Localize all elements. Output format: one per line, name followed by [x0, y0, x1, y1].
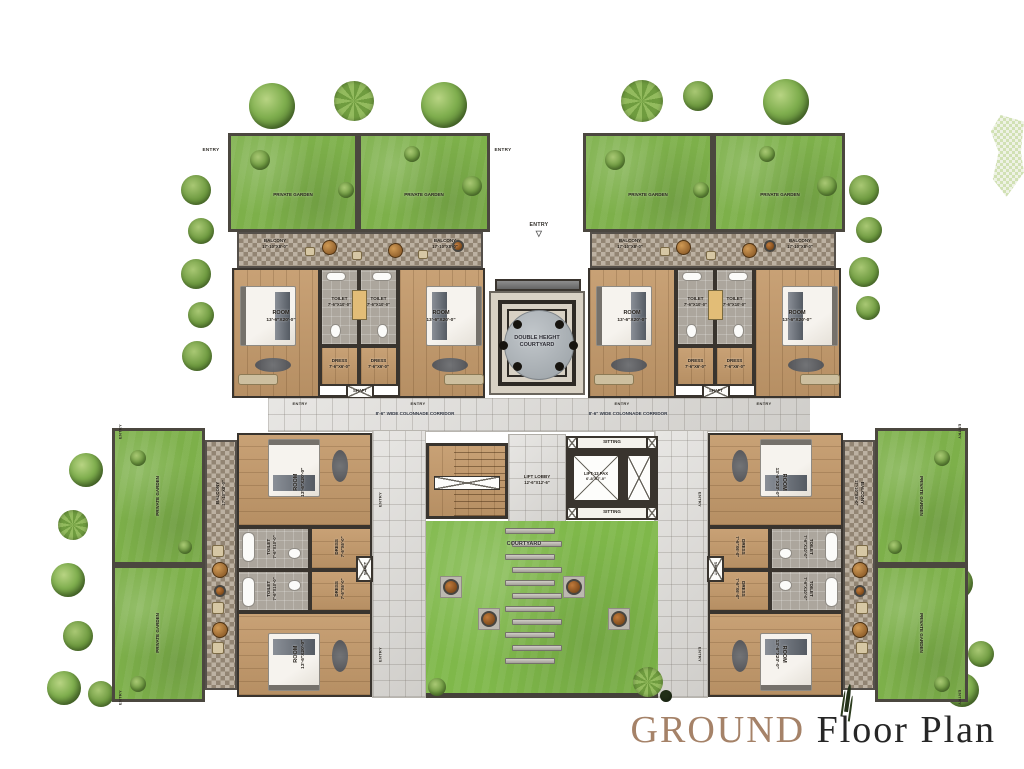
sink-icon — [326, 272, 346, 281]
room-label: ROOM13'-6"X20'-0" — [773, 452, 787, 512]
entry-label: ENTRY — [405, 401, 431, 406]
private-garden-label: PRIVATE GARDEN — [918, 598, 924, 668]
balcony-label: BALCONY17'-10"X8'-0" — [600, 238, 660, 250]
stepping-stone — [512, 645, 562, 651]
private-garden-label: PRIVATE GARDEN — [155, 598, 161, 668]
table-icon — [212, 622, 228, 638]
table-icon — [852, 562, 868, 578]
wall-post — [646, 436, 658, 450]
entry-label: ENTRY — [751, 401, 777, 406]
shaft-label: SHAFT — [346, 388, 374, 393]
room-label: ROOM13'-6"X20'-0" — [293, 624, 307, 684]
rug-icon — [732, 450, 748, 482]
palm-tree-icon — [334, 81, 374, 121]
bush-icon — [693, 182, 709, 198]
private-garden-label: PRIVATE GARDEN — [155, 461, 161, 531]
entry-label: ENTRY — [609, 401, 635, 406]
table-icon — [322, 240, 337, 255]
stepping-stone — [505, 528, 555, 534]
entry-label: ENTRY — [524, 222, 554, 228]
shaft-label: SHAFT — [362, 556, 367, 582]
rug-icon — [432, 358, 468, 372]
toilet-label: TOILET7'-6"X10'-0" — [715, 296, 754, 308]
dress-label: DRESS7'-6"X6'-0" — [334, 567, 346, 611]
table-icon — [212, 562, 228, 578]
entry-label: ENTRY — [378, 642, 383, 668]
palm-tree-icon — [621, 80, 663, 122]
bush-icon — [63, 621, 93, 651]
rug-icon — [732, 640, 748, 672]
dress-label: DRESS7'-6"X6'-0" — [359, 358, 398, 370]
lift-lobby-label: LIFT LOBBY12'-6"X12'-6" — [508, 474, 566, 486]
stepping-stone — [512, 619, 562, 625]
chair-icon — [212, 545, 224, 557]
chair-icon — [352, 251, 362, 260]
tree-icon — [47, 671, 81, 705]
rug-icon — [332, 450, 348, 482]
entry-label: ENTRY — [198, 147, 224, 152]
bush-icon — [605, 150, 625, 170]
table-icon — [852, 622, 868, 638]
wall-post — [566, 506, 578, 520]
room-label: ROOM13'-6"X20'-0" — [251, 310, 311, 324]
entry-label: ENTRY — [698, 487, 703, 513]
bush-icon — [178, 540, 192, 554]
tree-icon — [763, 79, 809, 125]
balcony-label: BALCONY17'-10"X8'-0" — [770, 238, 830, 250]
stepping-stone — [505, 658, 555, 664]
bench-icon — [444, 374, 484, 385]
bush-icon — [181, 175, 211, 205]
bush-icon — [188, 302, 214, 328]
bush-icon — [660, 690, 672, 702]
dress-label: DRESS7'-6"X6'-0" — [676, 358, 715, 370]
bathtub-icon — [242, 577, 255, 607]
plant-pot-icon — [481, 611, 497, 627]
dress-label: DRESS7'-6"X6'-0" — [734, 567, 746, 611]
stair-landing — [434, 476, 500, 490]
private-garden-label: PRIVATE GARDEN — [918, 461, 924, 531]
toilet-label: TOILET7'-6"X10'-0" — [266, 567, 278, 611]
dhc-label: DOUBLE HEIGHTCOURTYARD — [493, 335, 581, 349]
stepping-stone — [505, 632, 555, 638]
lift-label: LIFT-13 PAX6'-8"X7'-0" — [572, 471, 620, 482]
rug-icon — [611, 358, 647, 372]
courtyard-wall — [426, 693, 658, 698]
floor-plan-canvas: PRIVATE GARDEN PRIVATE GARDEN ENTRY BALC… — [0, 0, 1024, 769]
wall-post — [566, 436, 578, 450]
entry-label: ENTRY — [118, 419, 123, 445]
toilet-icon — [288, 548, 301, 559]
entry-label: ENTRY — [958, 685, 963, 711]
tree-icon — [421, 82, 467, 128]
sink-icon — [682, 272, 702, 281]
entry-label: ENTRY — [287, 401, 313, 406]
bush-icon — [934, 676, 950, 692]
private-garden-label: PRIVATE GARDEN — [388, 192, 460, 198]
room-label: ROOM13'-6"X20'-0" — [411, 310, 471, 324]
toilet-icon — [686, 324, 697, 338]
entry-label: ENTRY — [698, 642, 703, 668]
bush-icon — [888, 540, 902, 554]
bush-icon — [88, 681, 114, 707]
toilet-icon — [779, 580, 792, 591]
lintel-wall — [495, 279, 581, 291]
entry-label: ENTRY — [490, 147, 516, 152]
toilet-label: TOILET7'-6"X10'-0" — [802, 567, 814, 611]
dress-label: DRESS7'-6"X6'-0" — [715, 358, 754, 370]
corridor-label: 8'-6" WIDE COLONNADE CORRIDOR — [558, 411, 698, 417]
bush-icon — [856, 296, 880, 320]
chair-icon — [856, 642, 868, 654]
bench-icon — [800, 374, 840, 385]
bathtub-icon — [242, 532, 255, 562]
bush-icon — [130, 676, 146, 692]
bathtub-icon — [825, 577, 838, 607]
private-garden-label: PRIVATE GARDEN — [258, 192, 328, 198]
stepping-stone — [505, 580, 555, 586]
room-label: ROOM13'-6"X20'-0" — [773, 624, 787, 684]
entry-arrow-icon: ▽ — [533, 229, 545, 238]
toilet-label: TOILET7'-6"X10'-0" — [320, 296, 359, 308]
dress-label: DRESS7'-6"X6'-0" — [734, 525, 746, 569]
balcony-label: BALCONY17'-10"X8'-0" — [245, 238, 305, 250]
entry-label: ENTRY — [378, 487, 383, 513]
bench-icon — [594, 374, 634, 385]
sitting-label: SITTING — [580, 439, 644, 445]
bush-icon — [188, 218, 214, 244]
bush-icon — [817, 176, 837, 196]
column-dot — [555, 320, 564, 329]
toilet-label: TOILET7'-6"X10'-0" — [266, 525, 278, 569]
toilet-icon — [288, 580, 301, 591]
balcony-label: BALCONY17'-10"X8'-0" — [215, 463, 227, 523]
plant-pot-icon — [443, 579, 459, 595]
toilet-icon — [733, 324, 744, 338]
bush-icon — [968, 641, 994, 667]
toilet-label: TOILET7'-6"X10'-0" — [676, 296, 715, 308]
table-icon — [676, 240, 691, 255]
room-label: ROOM13'-6"X20'-0" — [293, 452, 307, 512]
stepping-stone — [512, 593, 562, 599]
shaft-label: SHAFT — [702, 388, 730, 393]
toilet-label: TOILET7'-6"X10'-0" — [802, 525, 814, 569]
tree-icon — [69, 453, 103, 487]
chair-icon — [706, 251, 716, 260]
staircase — [426, 443, 508, 519]
room-label: ROOM13'-6"X20'-0" — [602, 310, 662, 324]
page-title: GROUND Floor Plan — [631, 708, 996, 752]
rug-icon — [788, 358, 824, 372]
sitting-label: SITTING — [580, 509, 644, 515]
bush-icon — [856, 217, 882, 243]
chair-icon — [856, 545, 868, 557]
toilet-icon — [779, 548, 792, 559]
private-garden — [583, 133, 713, 232]
plant-pot-icon — [854, 585, 866, 597]
bush-icon — [759, 146, 775, 162]
chair-icon — [212, 602, 224, 614]
chair-icon — [660, 247, 670, 256]
bush-icon — [182, 341, 212, 371]
plant-pot-icon — [566, 579, 582, 595]
rug-icon — [332, 640, 348, 672]
stepping-stone — [512, 567, 562, 573]
lift-car — [626, 454, 652, 502]
corridor-label: 8'-6" WIDE COLONNADE CORRIDOR — [345, 411, 485, 417]
palm-tree-icon — [58, 510, 88, 540]
chair-icon — [418, 250, 428, 259]
stepping-stone — [505, 606, 555, 612]
bush-icon — [849, 175, 879, 205]
stepping-stone — [505, 554, 555, 560]
chair-icon — [856, 602, 868, 614]
toilet-icon — [330, 324, 341, 338]
bush-icon — [934, 450, 950, 466]
balcony-label: BALCONY17'-10"X8'-0" — [853, 463, 865, 523]
plant-pot-icon — [214, 585, 226, 597]
sink-icon — [372, 272, 392, 281]
bench-icon — [238, 374, 278, 385]
courtyard-label: COURTYARD — [489, 541, 559, 548]
toilet-icon — [377, 324, 388, 338]
bush-icon — [181, 259, 211, 289]
table-icon — [388, 243, 403, 258]
column-dot — [555, 362, 564, 371]
bathtub-icon — [825, 532, 838, 562]
dress-label: DRESS7'-6"X6'-0" — [320, 358, 359, 370]
private-garden-label: PRIVATE GARDEN — [613, 192, 683, 198]
private-garden — [228, 133, 358, 232]
rug-icon — [255, 358, 291, 372]
bush-icon — [462, 176, 482, 196]
title-ground: GROUND — [631, 709, 806, 751]
bush-icon — [250, 150, 270, 170]
site-key-map — [985, 115, 1024, 197]
entry-label: ENTRY — [958, 419, 963, 445]
shaft-label: SHAFT — [713, 556, 718, 582]
balcony-label: BALCONY17'-10"X8'-0" — [415, 238, 475, 250]
bush-icon — [404, 146, 420, 162]
wall-post — [646, 506, 658, 520]
table-icon — [742, 243, 757, 258]
private-garden-label: PRIVATE GARDEN — [744, 192, 816, 198]
bush-icon — [130, 450, 146, 466]
bush-icon — [338, 182, 354, 198]
toilet-label: TOILET7'-6"X10'-0" — [359, 296, 398, 308]
title-rest: Floor Plan — [805, 709, 996, 751]
chair-icon — [305, 247, 315, 256]
column-dot — [513, 362, 522, 371]
bush-icon — [849, 257, 879, 287]
bush-icon — [683, 81, 713, 111]
room-label: ROOM13'-6"X20'-0" — [767, 310, 827, 324]
tree-icon — [249, 83, 295, 129]
tree-icon — [51, 563, 85, 597]
sink-icon — [728, 272, 748, 281]
chair-icon — [212, 642, 224, 654]
palm-tree-icon — [633, 667, 663, 697]
column-dot — [513, 320, 522, 329]
bush-icon — [428, 678, 446, 696]
plant-pot-icon — [611, 611, 627, 627]
dress-label: DRESS7'-6"X6'-0" — [334, 525, 346, 569]
entry-label: ENTRY — [118, 685, 123, 711]
